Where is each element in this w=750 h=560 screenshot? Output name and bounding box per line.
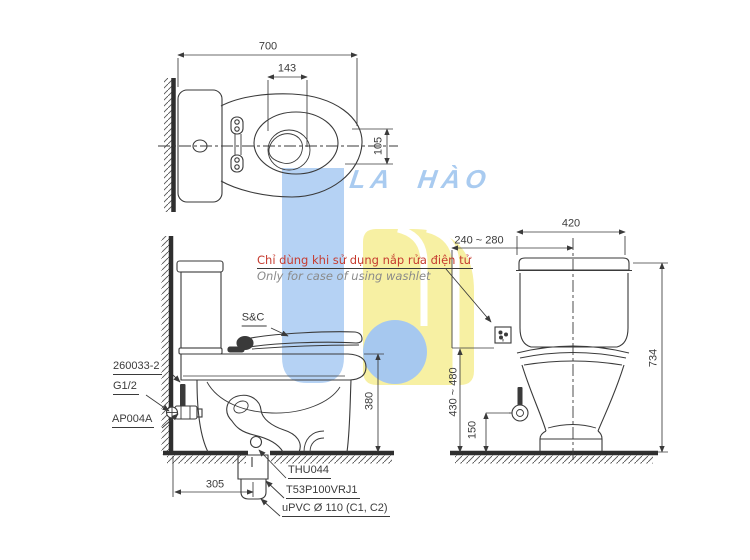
label-supply-pipe: 260033-2 [113,360,162,375]
seat-hinge-bolts [231,117,243,172]
floor-section-side [163,453,394,464]
dim-143: 143 [278,63,296,76]
watermark-brand-text: LA HÀO [348,164,493,195]
dim-240-280: 240 ~ 280 [454,235,503,248]
dim-380: 380 [364,392,377,410]
label-seat-cover: S&C [242,312,267,327]
toilet-installation-diagram: LA HÀO Chỉ dùng khi sử dụng nắp rửa điện… [0,0,750,560]
water-area-top [268,130,310,170]
label-outlet-joint: T53P100VRJ1 [286,484,360,499]
dim-305: 305 [206,479,224,492]
label-drain-pipe: uPVC Ø 110 (C1, C2) [282,502,390,517]
washlet-note-vietnamese: Chỉ dùng khi sử dụng nắp rửa điện tử [257,254,473,269]
label-thread: G1/2 [113,380,139,395]
dim-420: 420 [562,218,580,231]
dim-734: 734 [648,349,661,367]
water-spot-top [269,134,303,164]
wall-section-side [162,236,172,455]
dim-150: 150 [467,421,480,439]
label-flange: THU044 [288,464,331,479]
front-view-drawing [450,232,668,464]
floor-section-front [450,453,658,464]
label-angle-valve: AP004A [112,413,154,428]
wall-section-top [164,78,174,212]
dim-700: 700 [259,41,277,54]
washlet-outlet-icon [495,327,511,343]
washlet-note-english: Only for case of using washlet [257,270,431,283]
bowl-outlet-hole [251,437,262,448]
tank-side-view [177,261,223,354]
dim-430-480: 430 ~ 480 [448,367,461,416]
logo-circle [363,320,427,384]
shutoff-valve-icon [509,387,528,421]
dim-105: 105 [373,137,386,155]
tank-front-view [516,258,632,347]
trapway [227,395,300,452]
seat-ring-top [254,112,338,174]
